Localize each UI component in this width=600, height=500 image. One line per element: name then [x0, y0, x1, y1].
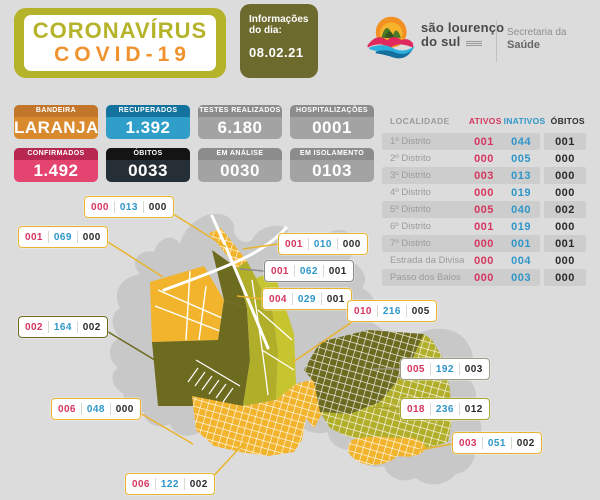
district-table-header: LOCALIDADE ATIVOS INATIVOS ÓBITOS	[382, 112, 588, 130]
stat-cards: BANDEIRALARANJARECUPERADOS1.392TESTES RE…	[14, 105, 374, 182]
stat-card-value: 0103	[290, 160, 374, 182]
stat-card-value: 0033	[106, 160, 190, 182]
cell-obitos: 001	[555, 136, 575, 148]
label-divider	[323, 265, 324, 277]
map-label-11: 003051002	[452, 432, 542, 454]
label-divider	[511, 437, 512, 449]
label-inativos: 062	[300, 266, 318, 277]
label-inativos: 013	[120, 202, 138, 213]
label-obitos: 002	[83, 322, 101, 333]
map-label-5: 001010000	[278, 233, 368, 255]
label-divider	[308, 238, 309, 250]
label-divider	[482, 437, 483, 449]
label-obitos: 000	[83, 232, 101, 243]
stat-card-label: EM ISOLAMENTO	[290, 148, 374, 160]
logo-smallprint	[466, 40, 482, 47]
info-date-box: Informações do dia: 08.02.21	[240, 4, 318, 78]
map-label-3: 006048000	[51, 398, 141, 420]
city-logo-icon	[366, 11, 418, 63]
stat-card-label: ÓBITOS	[106, 148, 190, 160]
city-logo-name: são lourenço do sul	[421, 21, 504, 49]
table-row-obitos: 000	[544, 167, 586, 184]
map-label-10: 018236012	[400, 398, 490, 420]
label-divider	[77, 321, 78, 333]
label-inativos: 029	[298, 294, 316, 305]
label-divider	[430, 363, 431, 375]
department-name: Secretaria da Saúde	[507, 27, 566, 51]
stat-card-label: HOSPITALIZAÇÕES	[290, 105, 374, 117]
label-inativos: 048	[87, 404, 105, 415]
stat-card-3: HOSPITALIZAÇÕES0001	[290, 105, 374, 139]
label-divider	[155, 478, 156, 490]
col-header-localidade: LOCALIDADE	[382, 116, 467, 126]
label-divider	[114, 201, 115, 213]
map-label-0: 000013000	[84, 196, 174, 218]
city-logo-name-line1: são lourenço	[421, 21, 504, 35]
label-divider	[77, 231, 78, 243]
label-obitos: 000	[116, 404, 134, 415]
col-header-obitos: ÓBITOS	[548, 116, 588, 126]
label-inativos: 122	[161, 479, 179, 490]
map-label-9: 005192003	[400, 358, 490, 380]
cell-ativos: 000	[466, 153, 502, 165]
stat-card-value: 0001	[290, 117, 374, 139]
info-date-label: Informações do dia:	[249, 14, 309, 36]
table-row-obitos: 000	[544, 150, 586, 167]
stat-card-label: TESTES REALIZADOS	[198, 105, 282, 117]
label-obitos: 000	[149, 202, 167, 213]
label-divider	[321, 293, 322, 305]
table-row-main: 3º Distrito003013	[382, 167, 540, 184]
label-inativos: 216	[383, 306, 401, 317]
table-row-main: 1º Distrito001044	[382, 133, 540, 150]
label-ativos: 000	[91, 202, 109, 213]
label-divider	[292, 293, 293, 305]
label-divider	[377, 305, 378, 317]
label-ativos: 006	[58, 404, 76, 415]
label-obitos: 001	[327, 294, 345, 305]
header-divider	[496, 20, 497, 62]
label-divider	[294, 265, 295, 277]
col-header-inativos: INATIVOS	[504, 116, 544, 126]
label-inativos: 051	[488, 438, 506, 449]
cell-localidade: 1º Distrito	[382, 136, 466, 147]
label-ativos: 010	[354, 306, 372, 317]
cell-localidade: 3º Distrito	[382, 170, 466, 181]
map-label-6: 001062001	[264, 260, 354, 282]
stat-card-7: EM ISOLAMENTO0103	[290, 148, 374, 182]
covid-dashboard: CORONAVÍRUS COVID-19 Informações do dia:…	[0, 0, 600, 500]
cell-obitos: 000	[555, 153, 575, 165]
stat-card-label: CONFIRMADOS	[14, 148, 98, 160]
info-date-value: 08.02.21	[249, 45, 309, 60]
stat-card-value: 0030	[198, 160, 282, 182]
label-divider	[337, 238, 338, 250]
cell-inativos: 013	[502, 170, 540, 182]
stat-card-value: 6.180	[198, 117, 282, 139]
label-obitos: 000	[343, 239, 361, 250]
label-ativos: 018	[407, 404, 425, 415]
cell-obitos: 000	[555, 170, 575, 182]
label-ativos: 001	[271, 266, 289, 277]
table-row-main: 2º Distrito000005	[382, 150, 540, 167]
col-header-ativos: ATIVOS	[467, 116, 504, 126]
title-inner: CORONAVÍRUS COVID-19	[24, 15, 216, 71]
department-line2: Saúde	[507, 39, 566, 51]
label-ativos: 006	[132, 479, 150, 490]
stat-card-label: RECUPERADOS	[106, 105, 190, 117]
label-divider	[48, 231, 49, 243]
stat-card-label: BANDEIRA	[14, 105, 98, 117]
label-obitos: 002	[517, 438, 535, 449]
label-ativos: 005	[407, 364, 425, 375]
cell-inativos: 044	[502, 136, 540, 148]
stat-card-value: LARANJA	[14, 117, 98, 139]
stat-card-0: BANDEIRALARANJA	[14, 105, 98, 139]
stat-card-value: 1.492	[14, 160, 98, 182]
label-ativos: 001	[25, 232, 43, 243]
label-divider	[459, 403, 460, 415]
label-divider	[459, 363, 460, 375]
label-divider	[406, 305, 407, 317]
cell-ativos: 001	[466, 136, 502, 148]
label-obitos: 001	[329, 266, 347, 277]
label-ativos: 002	[25, 322, 43, 333]
stat-card-value: 1.392	[106, 117, 190, 139]
label-divider	[48, 321, 49, 333]
table-row: 3º Distrito003013000	[382, 167, 588, 184]
label-inativos: 069	[54, 232, 72, 243]
label-divider	[81, 403, 82, 415]
label-obitos: 003	[465, 364, 483, 375]
stat-card-4: CONFIRMADOS1.492	[14, 148, 98, 182]
title-box: CORONAVÍRUS COVID-19	[14, 8, 226, 78]
page-title-covid19: COVID-19	[54, 43, 191, 67]
map-label-1: 001069000	[18, 226, 108, 248]
table-row-obitos: 001	[544, 133, 586, 150]
label-inativos: 192	[436, 364, 454, 375]
cell-inativos: 005	[502, 153, 540, 165]
label-obitos: 002	[190, 479, 208, 490]
label-divider	[430, 403, 431, 415]
map-label-7: 004029001	[262, 288, 352, 310]
stat-card-label: EM ANÁLISE	[198, 148, 282, 160]
label-inativos: 164	[54, 322, 72, 333]
stat-card-1: RECUPERADOS1.392	[106, 105, 190, 139]
page-title-coronavirus: CORONAVÍRUS	[33, 19, 207, 43]
table-row: 1º Distrito001044001	[382, 133, 588, 150]
label-divider	[143, 201, 144, 213]
label-obitos: 005	[412, 306, 430, 317]
label-inativos: 236	[436, 404, 454, 415]
cell-ativos: 003	[466, 170, 502, 182]
label-ativos: 003	[459, 438, 477, 449]
label-divider	[110, 403, 111, 415]
city-logo-name-line2: do sul	[421, 35, 504, 49]
stat-card-6: EM ANÁLISE0030	[198, 148, 282, 182]
label-ativos: 001	[285, 239, 303, 250]
label-divider	[184, 478, 185, 490]
map-label-2: 002164002	[18, 316, 108, 338]
department-line1: Secretaria da	[507, 27, 566, 39]
stat-card-5: ÓBITOS0033	[106, 148, 190, 182]
map-label-8: 010216005	[347, 300, 437, 322]
map-label-4: 006122002	[125, 473, 215, 495]
cell-localidade: 2º Distrito	[382, 153, 466, 164]
table-row: 2º Distrito000005000	[382, 150, 588, 167]
label-inativos: 010	[314, 239, 332, 250]
stat-card-2: TESTES REALIZADOS6.180	[198, 105, 282, 139]
label-obitos: 012	[465, 404, 483, 415]
label-ativos: 004	[269, 294, 287, 305]
